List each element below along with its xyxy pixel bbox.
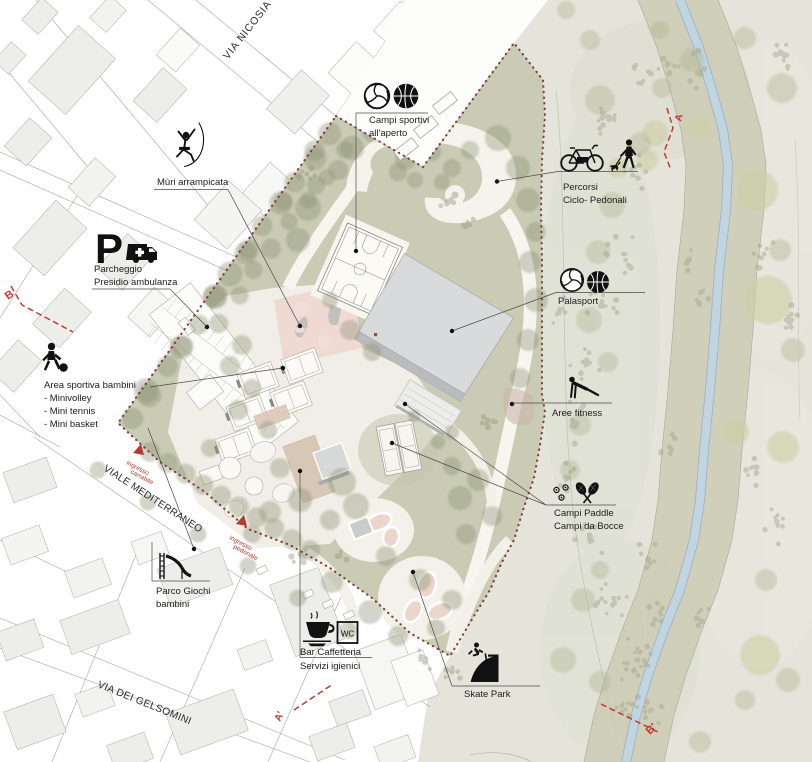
svg-text:Aree fitness: Aree fitness (552, 408, 602, 419)
svg-text:Mùri arrampicata: Mùri arrampicata (157, 177, 229, 188)
svg-text:Ciclo- Pedonali: Ciclo- Pedonali (563, 195, 627, 206)
svg-text:all'aperto: all'aperto (369, 128, 407, 139)
svg-text:- Mini basket: - Mini basket (44, 419, 98, 430)
svg-text:Campi da Bocce: Campi da Bocce (554, 521, 624, 532)
svg-text:Servizi igienici: Servizi igienici (300, 661, 360, 672)
svg-text:WC: WC (341, 630, 355, 639)
svg-text:Percorsi: Percorsi (563, 182, 598, 193)
svg-text:Campi sportivi: Campi sportivi (369, 115, 429, 126)
svg-text:bambini: bambini (156, 599, 189, 610)
svg-text:Parco Giochi: Parco Giochi (156, 586, 210, 597)
svg-text:Parcheggio: Parcheggio (94, 264, 142, 275)
svg-text:Palasport: Palasport (558, 296, 598, 307)
svg-text:Skate Park: Skate Park (464, 689, 511, 700)
svg-text:- Mini tennis: - Mini tennis (44, 406, 95, 417)
svg-text:Area sportiva bambini: Area sportiva bambini (44, 380, 136, 391)
svg-text:Campi Paddle: Campi Paddle (554, 508, 614, 519)
svg-text:- Minivolley: - Minivolley (44, 393, 92, 404)
svg-text:Presidio ambulanza: Presidio ambulanza (94, 277, 178, 288)
svg-text:Bar Caffetteria: Bar Caffetteria (300, 647, 362, 658)
